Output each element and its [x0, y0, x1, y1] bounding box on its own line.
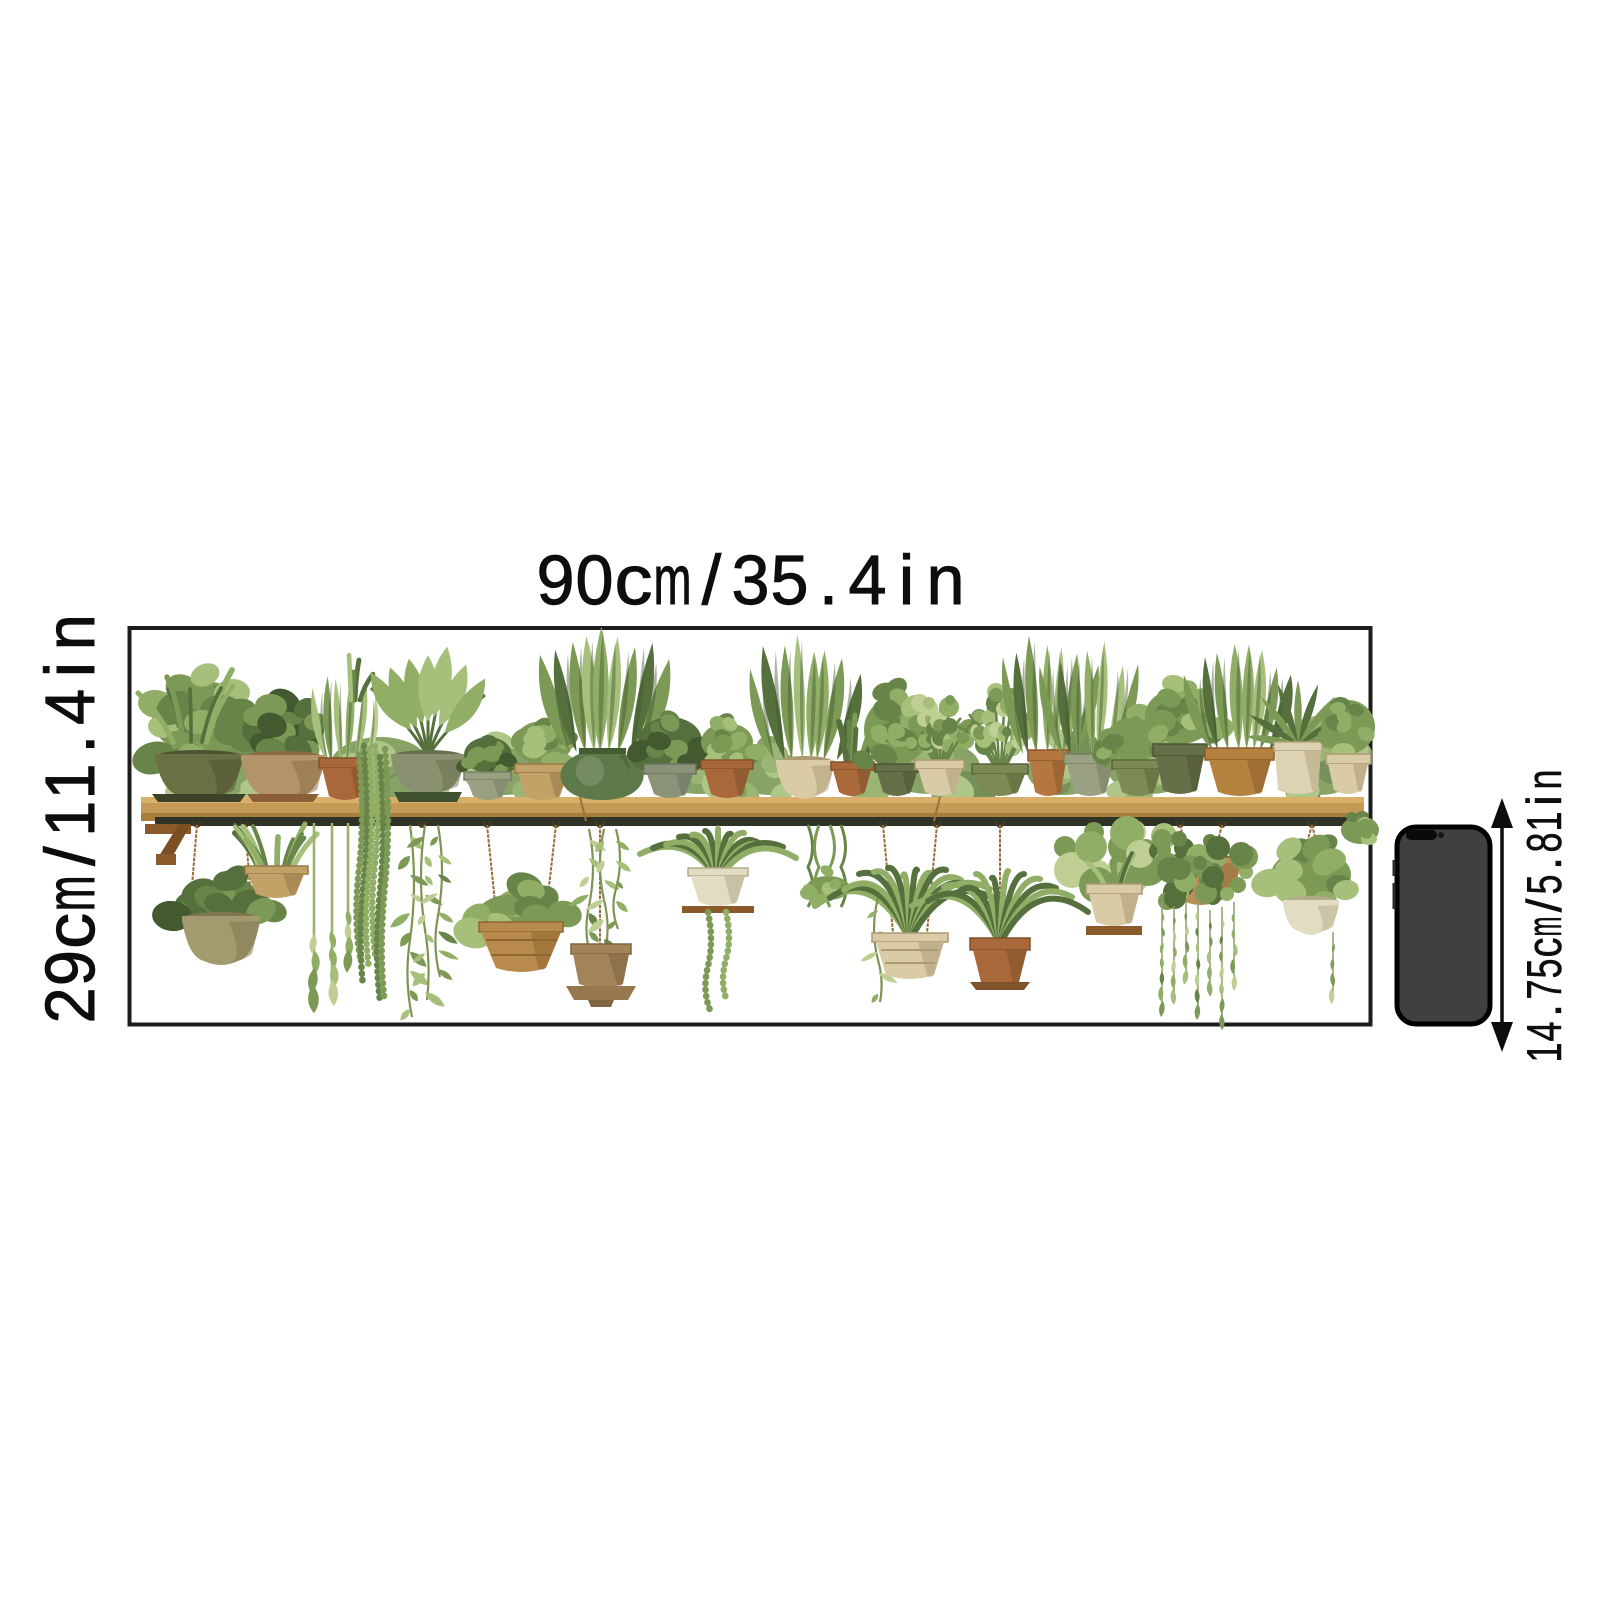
svg-text:5: 5 [771, 541, 809, 619]
svg-text:m: m [31, 875, 109, 911]
svg-text:1: 1 [31, 801, 109, 837]
svg-text:2: 2 [31, 987, 109, 1023]
svg-text:5: 5 [1518, 875, 1572, 895]
svg-text:i: i [31, 662, 109, 678]
svg-text:/: / [702, 541, 722, 619]
svg-text:3: 3 [732, 541, 770, 619]
svg-text:4: 4 [1518, 1022, 1572, 1042]
svg-text:n: n [31, 614, 109, 650]
svg-text:9: 9 [31, 950, 109, 986]
svg-text:m: m [654, 541, 692, 619]
svg-text:9: 9 [537, 541, 575, 619]
svg-text:4: 4 [849, 541, 887, 619]
svg-text:/: / [1518, 898, 1572, 912]
svg-text:8: 8 [1518, 833, 1572, 853]
svg-text:c: c [31, 913, 109, 949]
svg-text:m: m [1518, 917, 1572, 937]
svg-text:1: 1 [1518, 1043, 1572, 1063]
svg-text:c: c [615, 541, 653, 619]
svg-text:5: 5 [1518, 959, 1572, 979]
svg-text:c: c [1518, 938, 1572, 958]
svg-text:0: 0 [576, 541, 614, 619]
svg-text:n: n [927, 541, 965, 619]
svg-text:.: . [1518, 1004, 1572, 1018]
svg-text:/: / [31, 846, 109, 866]
svg-text:4: 4 [31, 689, 109, 725]
svg-text:.: . [819, 541, 838, 619]
svg-text:.: . [31, 734, 109, 753]
svg-text:.: . [1518, 857, 1572, 871]
svg-text:n: n [1518, 770, 1572, 790]
svg-text:1: 1 [31, 764, 109, 800]
svg-text:i: i [899, 541, 915, 619]
svg-text:i: i [1518, 795, 1572, 806]
svg-text:7: 7 [1518, 980, 1572, 1000]
svg-text:1: 1 [1518, 812, 1572, 832]
